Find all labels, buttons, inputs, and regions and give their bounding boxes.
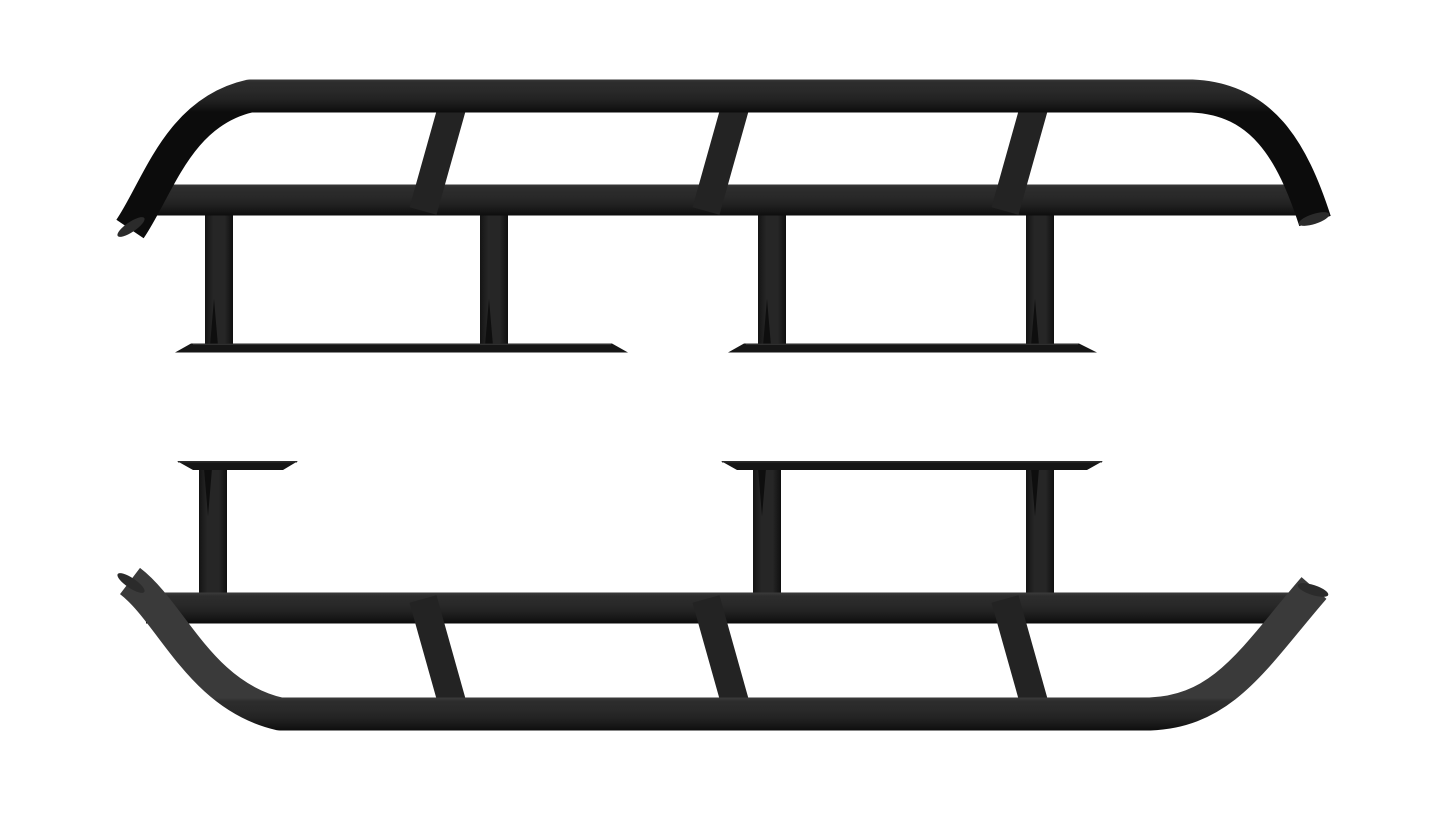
mounting-leg bbox=[753, 464, 781, 612]
mounting-leg bbox=[199, 464, 227, 612]
rock-slider-top bbox=[115, 96, 1331, 353]
mounting-leg bbox=[1026, 204, 1054, 349]
mounting-leg bbox=[1026, 464, 1054, 612]
mounting-leg bbox=[758, 204, 786, 349]
rock-sliders-illustration bbox=[0, 0, 1445, 813]
rock-slider-bottom bbox=[115, 461, 1330, 714]
mounting-leg bbox=[480, 204, 508, 349]
product-render-canvas bbox=[0, 0, 1445, 813]
mounting-leg bbox=[205, 204, 233, 349]
